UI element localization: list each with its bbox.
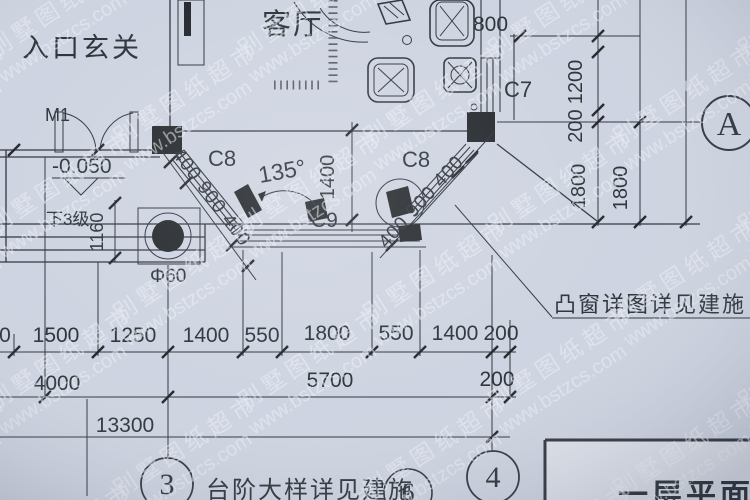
dim-right-200: 200: [565, 109, 587, 142]
dim-row1-200: 200: [483, 322, 518, 345]
dim-row3-13300: 13300: [96, 414, 154, 437]
round-column-fill: [152, 220, 184, 252]
dim-1160: 1160: [87, 213, 107, 252]
scanned-floor-plan: 入口玄关 客厅 M1 -0.050 下3级 Φ60 C8 135° C9 C8 …: [0, 0, 750, 500]
floor-plan-svg: 入口玄关 客厅 M1 -0.050 下3级 Φ60 C8 135° C9 C8 …: [0, 0, 750, 500]
grid-label-4: 4: [486, 461, 501, 494]
dim-row1-0: 0: [0, 324, 11, 347]
dim-row1-550a: 550: [244, 324, 279, 347]
dim-row1-1400b: 1400: [432, 322, 479, 345]
wall-insert: [184, 2, 191, 36]
door-label: M1: [45, 105, 70, 125]
dim-right-1200: 1200: [565, 60, 587, 105]
dim-row1-1400a: 1400: [183, 324, 230, 347]
window-c8-left-label: C8: [208, 146, 236, 171]
